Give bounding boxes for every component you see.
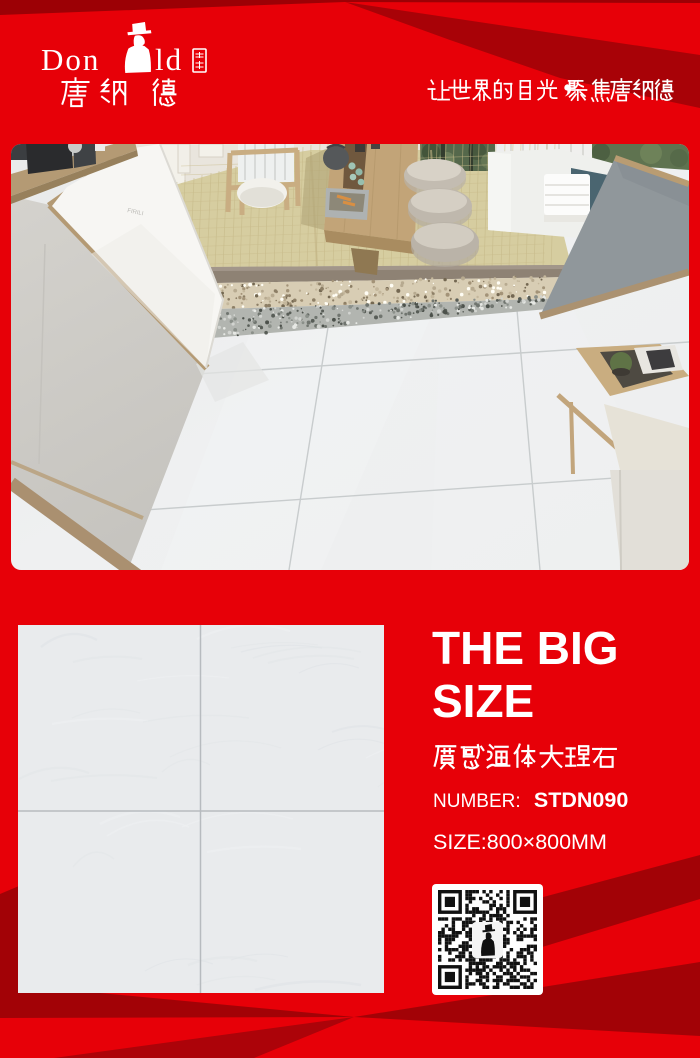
svg-text:Don: Don: [41, 42, 100, 77]
svg-text:ld: ld: [155, 42, 183, 77]
